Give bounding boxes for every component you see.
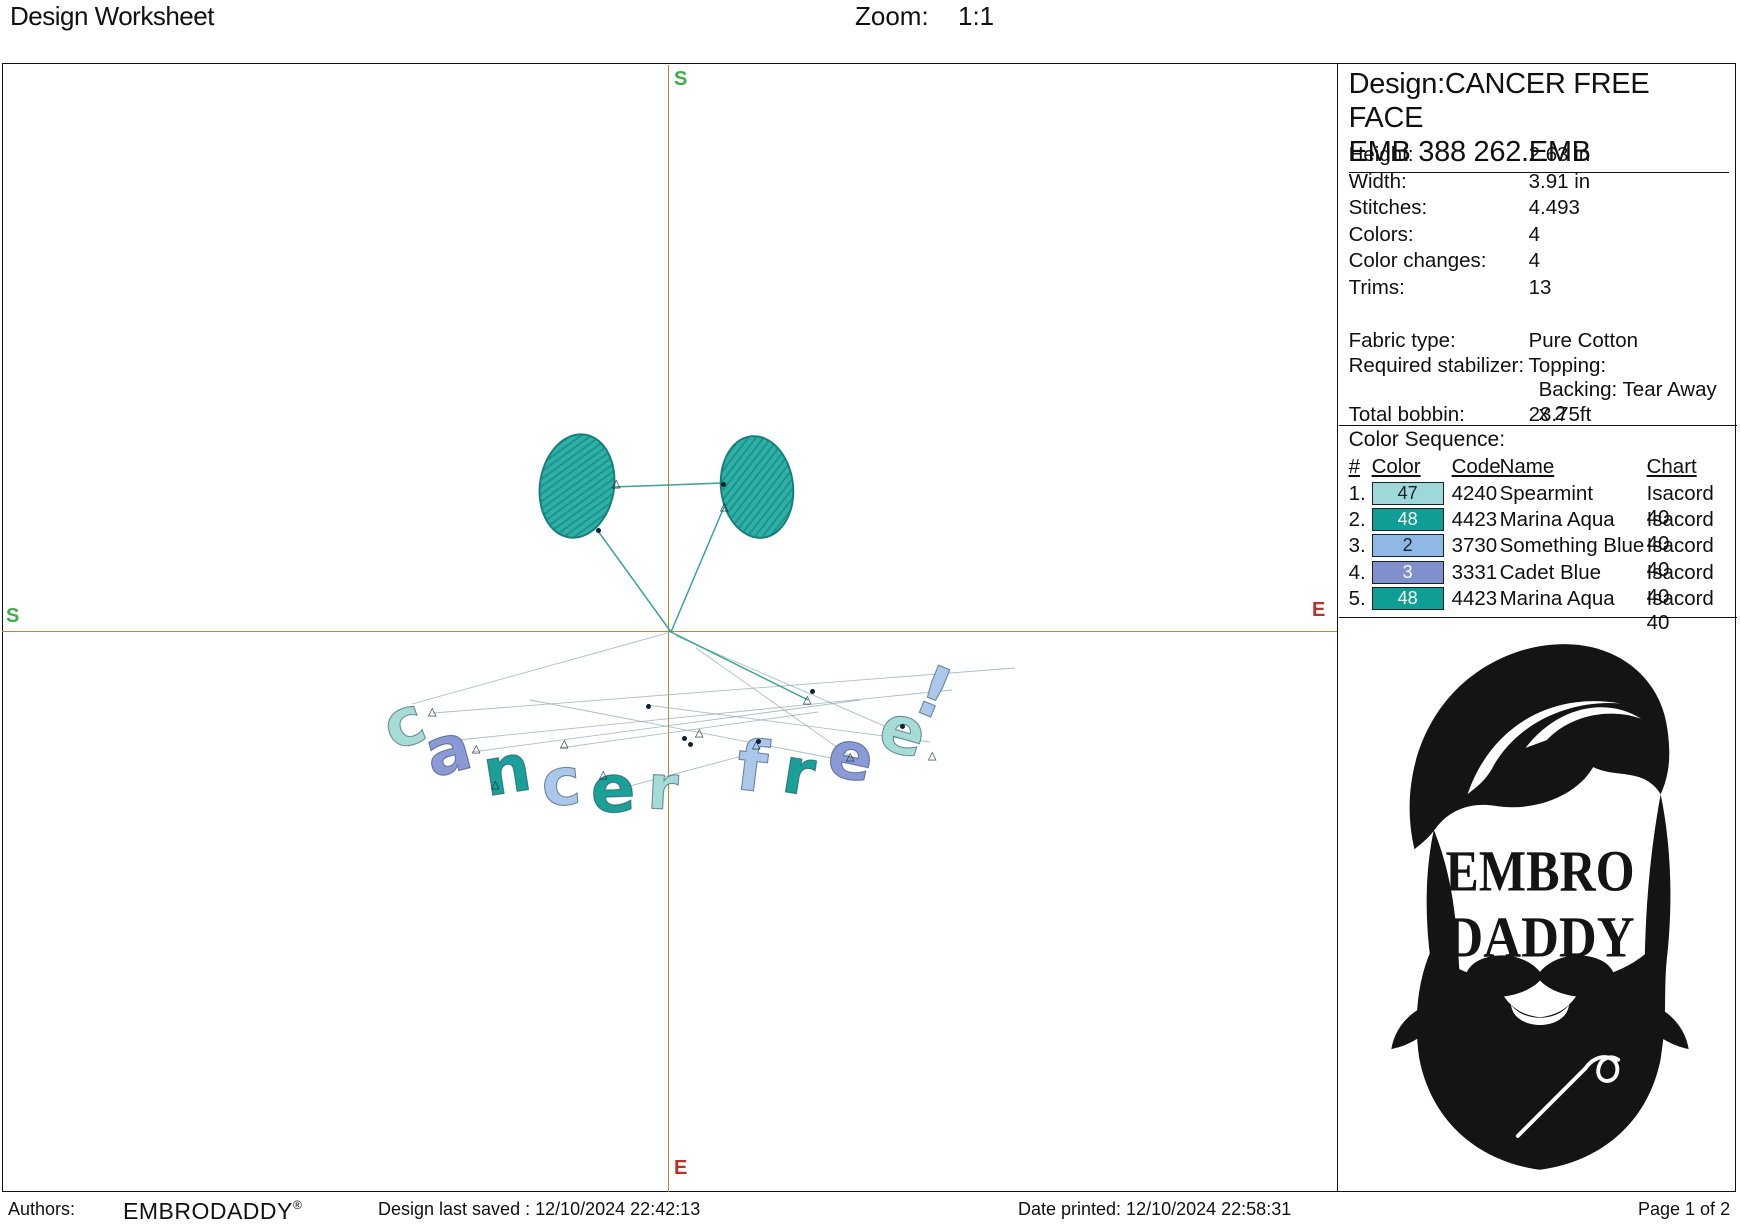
stitch-marker-dot xyxy=(900,724,905,729)
stitch-letter: n xyxy=(479,734,536,807)
color-swatch: 47 xyxy=(1372,482,1444,505)
spec-value: 4 xyxy=(1529,249,1540,273)
spec-value: 2.63 in xyxy=(1529,143,1591,167)
section-divider-bottom xyxy=(1339,617,1737,618)
spec-label: Stitches: xyxy=(1349,196,1428,220)
logo-beard xyxy=(1416,951,1663,1170)
jump-thread-lines xyxy=(2,65,1337,1192)
row-number: 4. xyxy=(1349,561,1366,585)
stitch-marker-dot xyxy=(810,689,815,694)
stitch-marker-triangle: △ xyxy=(491,780,499,791)
color-sequence-title: Color Sequence: xyxy=(1349,428,1505,452)
stitch-marker-dot xyxy=(756,739,761,744)
spec-row: Stitches:4.493 xyxy=(1349,196,1729,223)
thread-code: 4423 xyxy=(1452,508,1498,532)
start-label-top: S xyxy=(674,68,687,91)
color-sequence-header: #ColorCodeNameChart xyxy=(1349,455,1731,479)
spec-value: 4.493 xyxy=(1529,196,1580,220)
fabric-row: Fabric type:Pure Cotton xyxy=(1349,329,1729,356)
thread-line xyxy=(412,632,671,704)
thread-code: 4240 xyxy=(1452,482,1498,506)
spec-label: Color changes: xyxy=(1349,249,1487,273)
color-sequence-row: 5.484423Marina AquaIsacord 40 xyxy=(1349,587,1731,613)
spec-value: 4 xyxy=(1529,223,1540,247)
stitch-marker-triangle: △ xyxy=(803,695,811,706)
fabric-row: Backing: Tear Away x 2 xyxy=(1349,378,1729,405)
fabric-value: Pure Cotton xyxy=(1529,329,1638,353)
stitch-marker-dot xyxy=(646,704,651,709)
design-worksheet-page: Design Worksheet Zoom: 1:1 cancerfree! △… xyxy=(0,0,1740,1227)
fabric-value: 23.75ft xyxy=(1529,403,1592,427)
page-title: Design Worksheet xyxy=(10,1,214,32)
stitch-letter: e xyxy=(589,756,636,824)
fabric-label: Fabric type: xyxy=(1349,329,1456,353)
page-number: Page 1 of 2 xyxy=(1638,1199,1730,1220)
thread-line xyxy=(598,531,671,632)
registered-mark: ® xyxy=(293,1198,302,1212)
end-label-right: E xyxy=(1312,599,1325,622)
color-sequence-row: 3.23730Something BlueIsacord 40 xyxy=(1349,534,1731,560)
design-info-panel: Design:CANCER FREE FACE EMB 388 262.EMB … xyxy=(1339,65,1737,1192)
zoom-value: 1:1 xyxy=(958,1,994,32)
thread-code: 3730 xyxy=(1452,534,1498,558)
stitch-marker-triangle: △ xyxy=(560,739,568,750)
color-sequence-row: 1.474240SpearmintIsacord 40 xyxy=(1349,482,1731,508)
end-label-bottom: E xyxy=(674,1157,687,1180)
spec-value: 3.91 in xyxy=(1529,170,1591,194)
stitch-marker-triangle: △ xyxy=(928,751,936,762)
color-sequence-col-header: Name xyxy=(1500,455,1555,479)
thread-chart: Isacord 40 xyxy=(1647,587,1731,635)
color-sequence-row: 2.484423Marina AquaIsacord 40 xyxy=(1349,508,1731,534)
spec-row: Width:3.91 in xyxy=(1349,170,1729,197)
spec-value: 13 xyxy=(1529,276,1552,300)
stitch-marker-triangle: △ xyxy=(472,744,480,755)
color-swatch: 2 xyxy=(1372,534,1444,557)
fabric-row: Required stabilizer:Topping: xyxy=(1349,354,1729,381)
color-swatch: 3 xyxy=(1372,561,1444,584)
row-number: 1. xyxy=(1349,482,1366,506)
color-sequence-col-header: Chart xyxy=(1647,455,1697,479)
stitch-marker-triangle: △ xyxy=(428,707,436,718)
thread-line xyxy=(613,483,723,487)
authors-label: Authors: xyxy=(8,1199,75,1220)
design-canvas: cancerfree! △△△△△△△△△△△△ S S E E xyxy=(2,65,1337,1192)
logo-text-line1: EMBRO xyxy=(1445,839,1634,904)
row-number: 5. xyxy=(1349,587,1366,611)
color-sequence-row: 4.33331Cadet BlueIsacord 40 xyxy=(1349,561,1731,587)
authors-brand: EMBRODADDY xyxy=(123,1198,293,1225)
thread-name: Marina Aqua xyxy=(1500,587,1615,611)
color-swatch: 48 xyxy=(1372,587,1444,610)
stitch-marker-dot xyxy=(596,528,601,533)
stitch-marker-triangle: △ xyxy=(695,728,703,739)
logo-text-line2: DADDY xyxy=(1445,904,1634,969)
design-name-line1: Design:CANCER FREE FACE xyxy=(1349,67,1729,135)
thread-code: 4423 xyxy=(1452,587,1498,611)
fabric-value: Topping: xyxy=(1529,354,1607,378)
stitch-marker-dot xyxy=(721,482,726,487)
spec-row: Trims:13 xyxy=(1349,276,1729,303)
color-sequence-col-header: # xyxy=(1349,455,1360,479)
row-number: 2. xyxy=(1349,508,1366,532)
section-divider xyxy=(1339,425,1737,426)
stitch-marker-triangle: △ xyxy=(599,770,607,781)
thread-line xyxy=(671,632,808,700)
spec-row: Color changes:4 xyxy=(1349,249,1729,276)
stitch-marker-triangle: △ xyxy=(846,752,854,763)
thread-name: Cadet Blue xyxy=(1500,561,1601,585)
stitch-marker-triangle: △ xyxy=(612,479,620,490)
start-label-left: S xyxy=(6,605,19,628)
spec-label: Width: xyxy=(1349,170,1407,194)
thread-name: Marina Aqua xyxy=(1500,508,1615,532)
last-saved-text: Design last saved : 12/10/2024 22:42:13 xyxy=(378,1199,700,1220)
embrodaddy-logo: EMBRO DADDY xyxy=(1375,632,1705,1192)
color-sequence-col-header: Color xyxy=(1372,455,1421,479)
footer: Authors: EMBRODADDY ® Design last saved … xyxy=(0,1192,1740,1227)
thread-name: Spearmint xyxy=(1500,482,1593,506)
zoom-label: Zoom: xyxy=(855,1,929,32)
fabric-label: Required stabilizer: xyxy=(1349,354,1524,378)
thread-line xyxy=(671,507,724,632)
color-sequence-col-header: Code xyxy=(1452,455,1501,479)
stitch-letter: r xyxy=(646,756,680,820)
logo-hair xyxy=(1409,644,1669,849)
color-swatch: 48 xyxy=(1372,508,1444,531)
fabric-label: Total bobbin: xyxy=(1349,403,1465,427)
thread-name: Something Blue xyxy=(1500,534,1645,558)
spec-label: Height: xyxy=(1349,143,1414,167)
spec-row: Height:2.63 in xyxy=(1349,143,1729,170)
thread-code: 3331 xyxy=(1452,561,1498,585)
stitch-letter: c xyxy=(539,748,584,817)
stitch-marker-dot xyxy=(682,736,687,741)
spec-row: Colors:4 xyxy=(1349,223,1729,250)
row-number: 3. xyxy=(1349,534,1366,558)
spec-label: Trims: xyxy=(1349,276,1405,300)
stitch-marker-dot xyxy=(688,742,693,747)
date-printed-text: Date printed: 12/10/2024 22:58:31 xyxy=(1018,1199,1291,1220)
stitch-marker-triangle: △ xyxy=(720,502,728,513)
spec-label: Colors: xyxy=(1349,223,1414,247)
